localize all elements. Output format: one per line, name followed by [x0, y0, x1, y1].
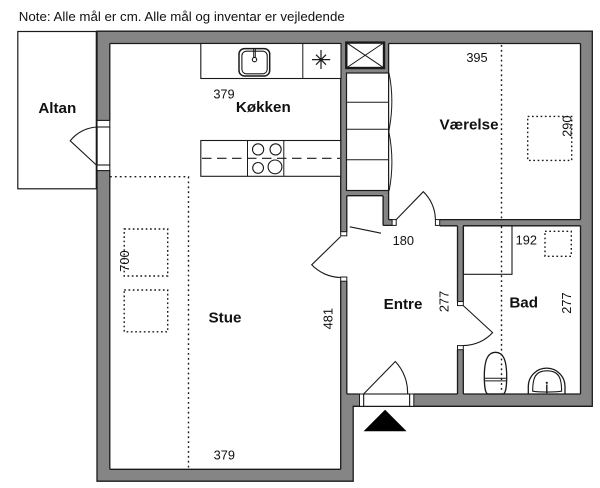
svg-text:Værelse: Værelse — [439, 116, 498, 133]
svg-text:Bad: Bad — [509, 295, 538, 312]
svg-text:379: 379 — [213, 87, 234, 102]
svg-text:Note: Alle mål er cm. Alle mål: Note: Alle mål er cm. Alle mål og invent… — [19, 9, 345, 24]
svg-text:Entre: Entre — [384, 296, 423, 313]
svg-text:700: 700 — [117, 250, 132, 271]
svg-text:481: 481 — [321, 308, 336, 329]
svg-text:Stue: Stue — [209, 310, 242, 327]
svg-text:180: 180 — [393, 233, 414, 248]
svg-text:290: 290 — [559, 116, 574, 137]
svg-text:379: 379 — [214, 448, 235, 463]
svg-text:395: 395 — [466, 50, 487, 65]
svg-text:277: 277 — [559, 292, 574, 313]
svg-text:Køkken: Køkken — [236, 99, 291, 116]
svg-text:Altan: Altan — [38, 100, 76, 117]
svg-text:277: 277 — [436, 291, 451, 312]
svg-text:192: 192 — [516, 233, 537, 248]
